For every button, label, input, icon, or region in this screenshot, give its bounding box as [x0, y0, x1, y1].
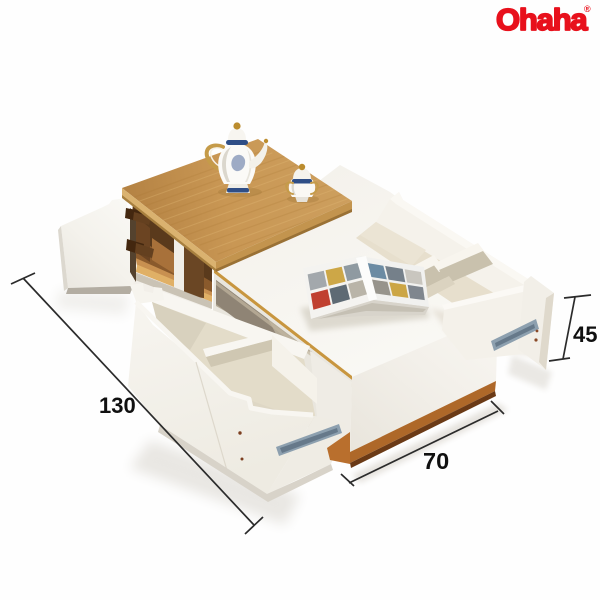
svg-text:130: 130: [99, 393, 136, 418]
svg-text:®: ®: [584, 4, 591, 14]
svg-text:70: 70: [423, 448, 449, 474]
svg-text:Ohaha: Ohaha: [496, 2, 588, 37]
svg-text:45: 45: [573, 322, 597, 347]
